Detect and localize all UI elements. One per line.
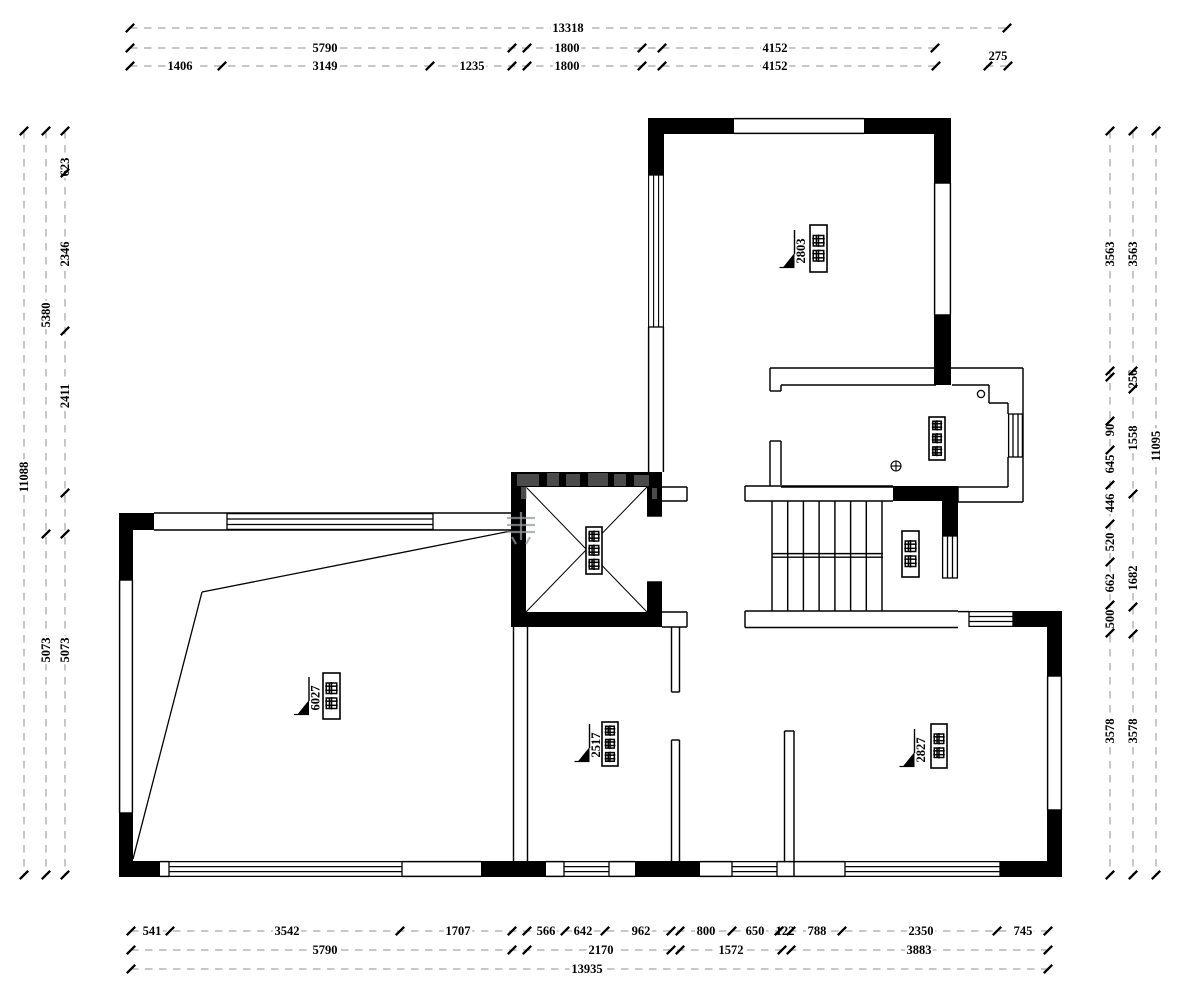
svg-text:1235: 1235 — [460, 59, 485, 73]
svg-text:2350: 2350 — [909, 924, 934, 938]
svg-text:3578: 3578 — [1103, 719, 1117, 744]
svg-text:5790: 5790 — [313, 943, 338, 957]
svg-text:3883: 3883 — [907, 943, 932, 957]
svg-text:566: 566 — [537, 924, 556, 938]
svg-text:650: 650 — [746, 924, 765, 938]
svg-text:13318: 13318 — [552, 21, 583, 35]
svg-text:5790: 5790 — [313, 41, 338, 55]
svg-text:11095: 11095 — [1149, 431, 1163, 462]
svg-text:4152: 4152 — [763, 41, 788, 55]
svg-text:3563: 3563 — [1126, 242, 1140, 267]
svg-text:645: 645 — [1103, 455, 1117, 474]
svg-text:1682: 1682 — [1126, 566, 1140, 591]
svg-text:3578: 3578 — [1126, 719, 1140, 744]
svg-text:1406: 1406 — [168, 59, 193, 73]
svg-text:3563: 3563 — [1103, 242, 1117, 267]
svg-text:5380: 5380 — [39, 303, 53, 328]
svg-text:788: 788 — [808, 924, 827, 938]
svg-text:2803: 2803 — [794, 239, 808, 264]
svg-text:275: 275 — [989, 49, 1008, 63]
svg-text:4152: 4152 — [763, 59, 788, 73]
svg-text:662: 662 — [1103, 574, 1117, 593]
svg-text:642: 642 — [574, 924, 593, 938]
svg-text:2346: 2346 — [58, 242, 72, 267]
svg-text:3542: 3542 — [275, 924, 300, 938]
svg-text:1558: 1558 — [1126, 426, 1140, 451]
svg-text:2411: 2411 — [58, 384, 72, 408]
svg-text:90: 90 — [1103, 424, 1117, 437]
svg-text:962: 962 — [632, 924, 651, 938]
svg-text:1800: 1800 — [555, 59, 580, 73]
svg-text:13935: 13935 — [571, 962, 602, 976]
svg-text:2170: 2170 — [589, 943, 614, 957]
svg-text:500: 500 — [1103, 610, 1117, 629]
svg-text:541: 541 — [143, 924, 162, 938]
svg-text:2517: 2517 — [589, 733, 603, 758]
svg-text:1800: 1800 — [555, 41, 580, 55]
svg-text:5073: 5073 — [58, 638, 72, 663]
svg-text:2827: 2827 — [914, 738, 928, 763]
svg-text:800: 800 — [697, 924, 716, 938]
svg-text:11088: 11088 — [17, 462, 31, 493]
svg-text:1572: 1572 — [719, 943, 744, 957]
svg-text:6027: 6027 — [309, 686, 323, 711]
svg-text:3149: 3149 — [313, 59, 338, 73]
svg-text:745: 745 — [1014, 924, 1033, 938]
svg-text:520: 520 — [1103, 533, 1117, 552]
svg-text:5073: 5073 — [39, 638, 53, 663]
svg-text:446: 446 — [1103, 494, 1117, 513]
svg-text:1707: 1707 — [446, 924, 471, 938]
